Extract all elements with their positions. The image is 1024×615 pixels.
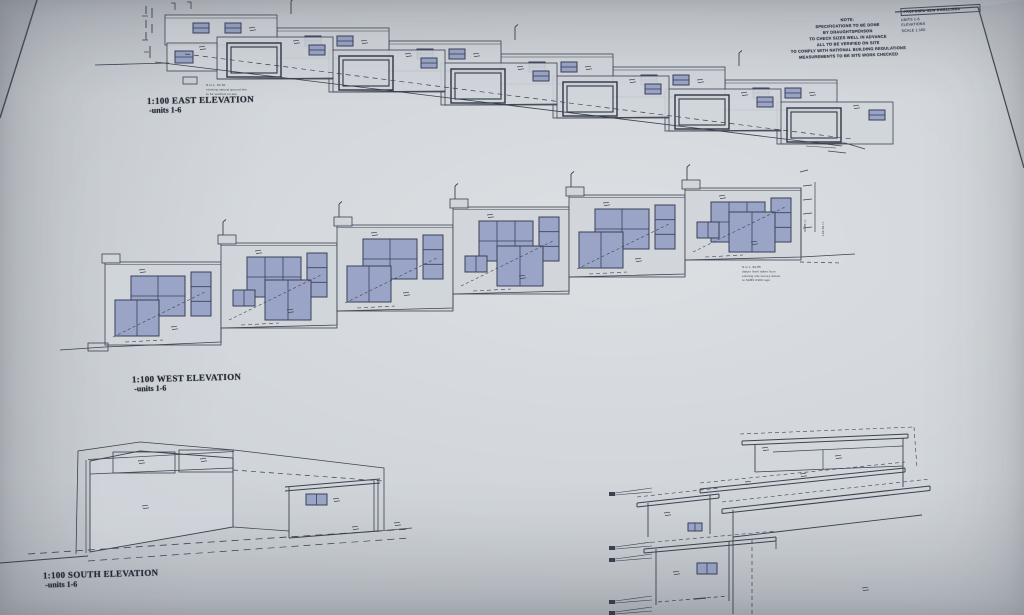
window <box>497 246 543 286</box>
elevation-unit <box>102 254 221 345</box>
level-flag <box>609 492 615 496</box>
parapet-step <box>450 199 468 208</box>
window <box>729 212 775 252</box>
elevations-linework: N.G.L. 64.30existing natural ground line… <box>0 0 1024 615</box>
elevation-unit <box>566 172 685 278</box>
window <box>175 51 193 63</box>
west-elevation-label: 1:100 WEST ELEVATION -units 1-6 <box>132 372 242 394</box>
east-elevation-title: 1:100 EAST ELEVATION <box>147 94 254 106</box>
east-elevation-units: -units 1-6 <box>149 104 254 115</box>
window-glass <box>423 235 443 279</box>
level-flag <box>609 558 615 562</box>
window <box>561 62 577 72</box>
level-flag <box>609 600 615 604</box>
window <box>306 494 327 505</box>
window <box>265 280 311 320</box>
window <box>449 49 465 59</box>
window <box>309 45 325 55</box>
window <box>697 563 717 574</box>
tiny-annotation: existing natural ground line <box>206 88 247 92</box>
tiny-annotation: existing site survey datum <box>742 274 781 278</box>
window <box>673 75 689 85</box>
window <box>193 23 209 33</box>
window <box>785 88 801 98</box>
elevation-unit <box>334 202 453 312</box>
parapet-step <box>682 180 700 189</box>
window <box>191 272 211 316</box>
window <box>697 222 719 238</box>
window <box>233 290 255 306</box>
window <box>655 205 675 249</box>
window <box>533 71 549 81</box>
tiny-annotation: 99.85 r.l. <box>803 219 807 232</box>
window <box>579 232 623 268</box>
blueprint-photo: N.G.L. 64.30existing natural ground line… <box>0 0 1024 615</box>
elevation-unit <box>682 165 801 261</box>
section-drawing <box>609 427 930 615</box>
window <box>423 235 443 279</box>
window <box>757 97 773 107</box>
window <box>421 58 437 68</box>
parapet-step <box>566 187 584 196</box>
window-glass <box>655 205 675 249</box>
level-flags <box>609 488 652 615</box>
window <box>337 36 353 46</box>
level-flag <box>609 546 615 550</box>
elevation-unit <box>450 184 569 295</box>
parapet-step <box>102 254 120 263</box>
drawing-sheet: N.G.L. 64.30existing natural ground line… <box>0 0 1024 615</box>
window <box>688 523 702 531</box>
tiny-annotation: N.G.L. 64.30 <box>206 83 225 87</box>
window <box>347 266 391 302</box>
window <box>225 23 241 33</box>
level-flag <box>609 611 615 615</box>
title-block: PROPOSED NEW DWELLINGSUNITS 1-6ELEVATION… <box>900 4 981 34</box>
parapet-step <box>334 217 352 226</box>
tiny-annotation: 102.35 r.l. <box>821 221 825 236</box>
elevation-unit <box>218 220 337 329</box>
window <box>645 84 661 94</box>
parapet-step <box>218 235 236 244</box>
window-glass <box>191 272 211 316</box>
tiny-annotation: datum level taken from <box>742 269 776 273</box>
window <box>465 256 487 272</box>
elevation-unit <box>165 0 333 84</box>
window <box>869 110 885 120</box>
window <box>115 300 159 336</box>
west-dimension-strip: 99.85 r.l.102.35 r.l. <box>800 170 825 236</box>
outline <box>183 77 197 84</box>
tiny-annotation: to SABS 0400 regs <box>742 278 770 282</box>
west-level-note: N.G.L. 99.85datum level taken fromexisti… <box>742 265 781 282</box>
south-elevation-drawing <box>0 442 412 563</box>
tiny-annotation: N.G.L. 99.85 <box>742 265 761 269</box>
south-elevation-label: 1:100 SOUTH ELEVATION -units 1-6 <box>43 567 159 589</box>
east-elevation-label: 1:100 EAST ELEVATION -units 1-6 <box>147 94 254 115</box>
west-elevation-drawing: 99.85 r.l.102.35 r.l.N.G.L. 99.85datum l… <box>60 165 855 352</box>
